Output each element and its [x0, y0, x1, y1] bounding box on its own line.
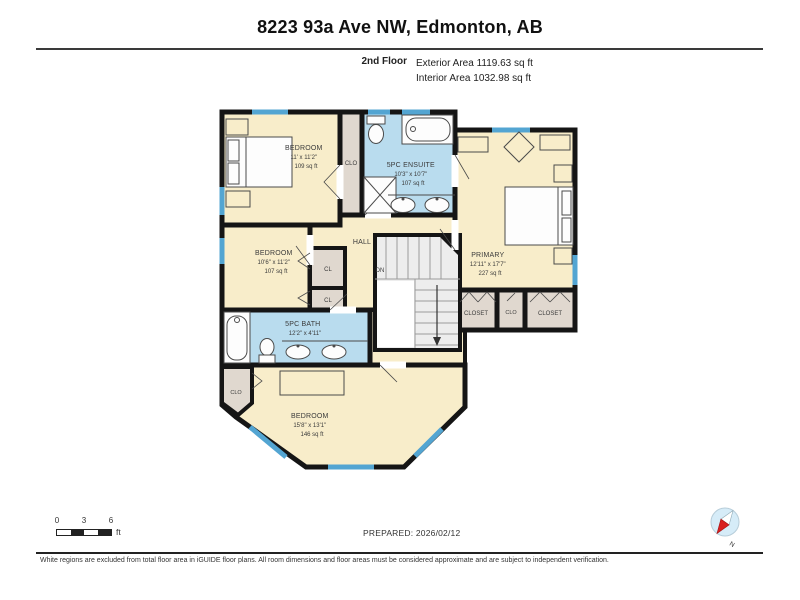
- room-bedroom-2: [222, 225, 310, 310]
- footer-disclaimer: White regions are excluded from total fl…: [40, 557, 760, 564]
- room-closet-right: [525, 290, 575, 330]
- prepared-date: PREPARED: 2026/02/12: [363, 528, 460, 538]
- area-summary: Exterior Area 1119.63 sq ft Interior Are…: [416, 56, 533, 86]
- scale-tick-3: 3: [79, 516, 89, 525]
- label-closet-left: CLOSET: [464, 311, 488, 317]
- label-closet-right: CLOSET: [538, 311, 562, 317]
- label-dn: DN: [376, 268, 385, 274]
- footer-divider: [36, 552, 763, 554]
- page-title: 8223 93a Ave NW, Edmonton, AB: [0, 17, 800, 38]
- floor-plan: BEDROOM 11' x 11'2" 109 sq ft CLO 5PC EN…: [210, 105, 585, 475]
- compass: N: [703, 500, 751, 552]
- label-cl-2: CL: [324, 298, 332, 304]
- label-cl-1: CL: [324, 267, 332, 273]
- scale-unit: ft: [116, 527, 121, 537]
- label-hall: HALL: [353, 239, 371, 246]
- compass-north-label: N: [728, 540, 736, 549]
- header-divider: [36, 48, 763, 50]
- label-clo-3: CLO: [230, 390, 242, 396]
- label-clo-2: CLO: [505, 310, 517, 316]
- floor-label: 2nd Floor: [290, 56, 407, 67]
- scale-bar-strip: [56, 529, 112, 536]
- scale-bar: 0 3 6 ft: [40, 516, 180, 546]
- scale-tick-0: 0: [52, 516, 62, 525]
- scale-tick-6: 6: [106, 516, 116, 525]
- label-clo-1: CLO: [345, 161, 358, 167]
- interior-area: Interior Area 1032.98 sq ft: [416, 71, 533, 86]
- exterior-area: Exterior Area 1119.63 sq ft: [416, 56, 533, 71]
